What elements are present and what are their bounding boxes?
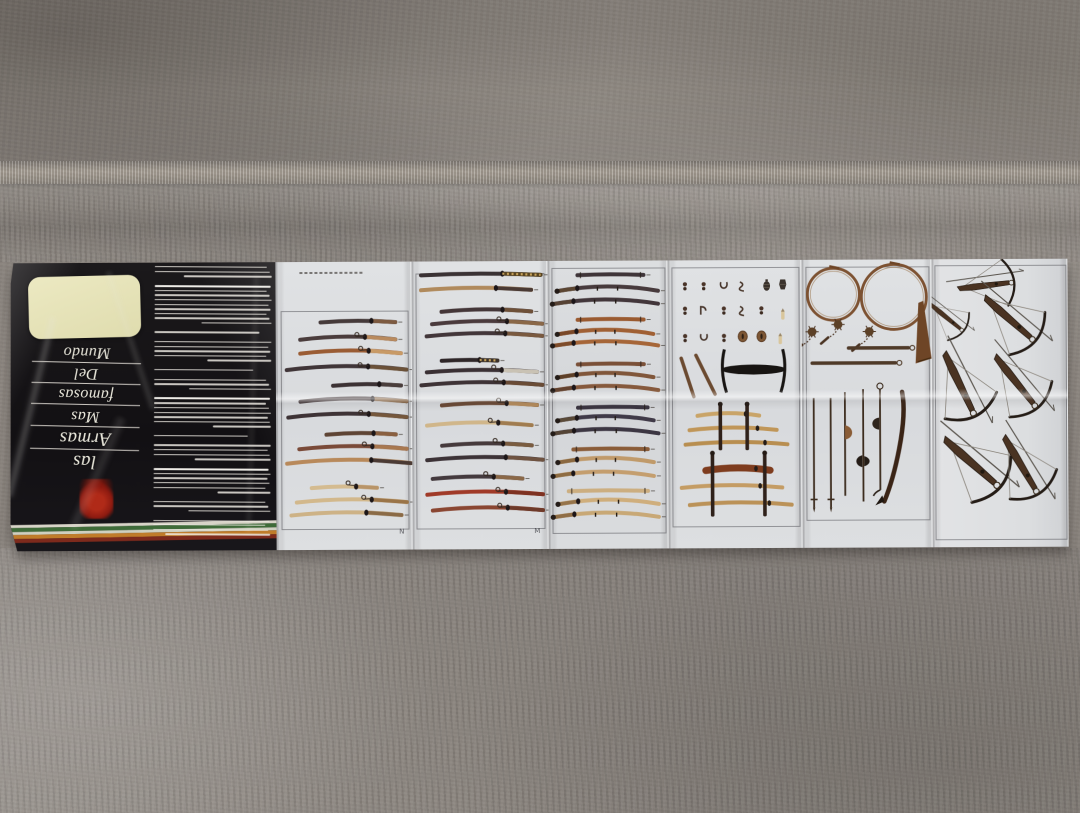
plate-swords-1: N: [275, 262, 412, 551]
weapons-brochure: Mundo Del famosas Mas Armas las N M: [9, 259, 1068, 552]
plate-illustrations: [411, 261, 548, 550]
cover-title-block: Mundo Del famosas Mas Armas las: [30, 341, 142, 473]
plate-illustrations: [931, 259, 1068, 548]
brochure-cover-panel: Mundo Del famosas Mas Armas las: [9, 262, 276, 551]
title-word: famosas: [58, 385, 114, 404]
title-word-row: Mas: [31, 403, 140, 427]
title-word: Del: [74, 364, 99, 383]
title-word-row: Armas: [30, 425, 140, 450]
cover-cream-label-area: [27, 275, 140, 340]
plate-horns-polearms: [801, 259, 932, 548]
plate-illustrations: [275, 262, 412, 551]
publisher-crest-emblem: [79, 479, 113, 519]
title-word: Armas: [59, 426, 111, 449]
plate-swords-3: [547, 260, 668, 549]
plate-illustrations: [801, 259, 932, 548]
plate-fittings-racks: [667, 260, 802, 549]
cover-description-text: [153, 266, 272, 543]
title-word-row: Mundo: [32, 341, 141, 364]
plate-crossbows: [931, 259, 1068, 548]
title-word: Mundo: [63, 343, 111, 362]
title-word: Mas: [71, 406, 100, 425]
title-word-row: las: [30, 448, 140, 473]
plate-swords-2: M: [411, 261, 548, 550]
photo-scene: Mundo Del famosas Mas Armas las N M: [0, 0, 1080, 813]
title-word-row: famosas: [31, 382, 140, 406]
title-word-row: Del: [32, 361, 141, 385]
title-word: las: [73, 450, 97, 473]
plate-illustrations: [667, 260, 802, 549]
plate-illustrations: [547, 260, 668, 549]
